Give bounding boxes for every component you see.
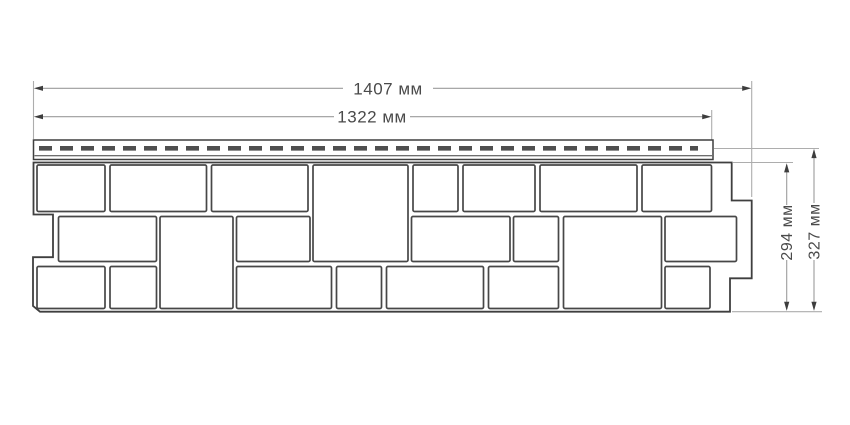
stone-block xyxy=(540,165,637,212)
stone-block xyxy=(387,267,484,309)
arrowhead-left xyxy=(34,86,43,91)
drawing-svg: 1407 мм 1322 мм 294 мм 327 мм xyxy=(0,0,850,425)
stone-block-tall xyxy=(313,165,408,262)
stone-block xyxy=(110,165,207,212)
arrowhead-up xyxy=(811,149,816,158)
dim-height-full-label: 327 мм xyxy=(807,203,824,259)
stone-block xyxy=(463,165,535,212)
panel-dimension-drawing: 1407 мм 1322 мм 294 мм 327 мм xyxy=(0,0,850,425)
arrowhead-right xyxy=(742,86,751,91)
stone-block xyxy=(237,217,311,262)
stone-block xyxy=(489,267,559,309)
stone-block xyxy=(665,267,710,309)
stone-block xyxy=(413,165,458,212)
panel xyxy=(33,140,752,312)
dim-width-full: 1407 мм xyxy=(34,79,752,98)
nail-hem xyxy=(34,140,714,160)
stone-block xyxy=(642,165,712,212)
stone-block xyxy=(237,267,332,309)
arrowhead-right xyxy=(702,114,711,119)
arrowhead-down xyxy=(811,302,816,311)
stone-block xyxy=(37,165,105,212)
dim-width-face-label: 1322 мм xyxy=(337,108,406,127)
stone-block-tall xyxy=(564,217,662,309)
stone-block-tall xyxy=(160,217,233,309)
stone-block xyxy=(665,217,737,262)
dim-width-face: 1322 мм xyxy=(34,108,712,127)
dim-height-full: 327 мм xyxy=(807,149,824,311)
arrowhead-left xyxy=(34,114,43,119)
stone-block xyxy=(110,267,157,309)
stone-block xyxy=(37,267,105,309)
stone-pattern xyxy=(37,165,737,309)
dim-height-face: 294 мм xyxy=(779,163,796,311)
dim-width-full-label: 1407 мм xyxy=(353,79,422,98)
arrowhead-down xyxy=(784,302,789,311)
stone-block xyxy=(212,165,309,212)
stone-block xyxy=(514,217,559,262)
dim-height-face-label: 294 мм xyxy=(779,204,796,260)
stone-block xyxy=(337,267,382,309)
stone-block xyxy=(412,217,511,262)
arrowhead-up xyxy=(784,163,789,172)
stone-block xyxy=(59,217,157,262)
